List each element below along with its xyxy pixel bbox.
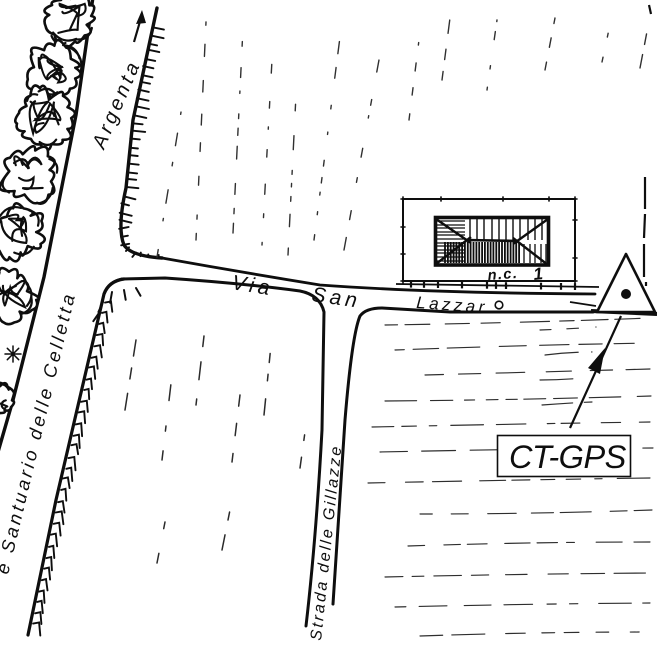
svg-text:n.c.: n.c. (487, 266, 519, 284)
svg-text:1: 1 (532, 264, 543, 284)
svg-text:CT-GPS: CT-GPS (509, 439, 627, 475)
